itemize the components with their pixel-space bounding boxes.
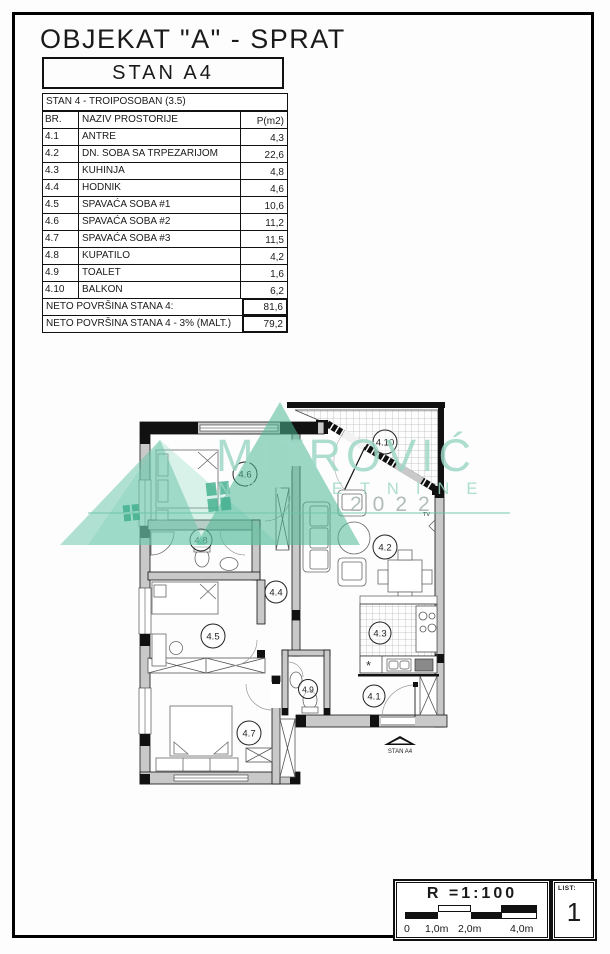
- svg-text:4.8: 4.8: [194, 536, 207, 547]
- sheet-box-inner: LIST: 1: [554, 882, 594, 938]
- svg-text:4.4: 4.4: [269, 588, 282, 599]
- table-row: 4.5SPAVAĆA SOBA #110,6: [43, 196, 287, 213]
- scale-tick: 0: [404, 923, 410, 935]
- table-row: 4.7SPAVAĆA SOBA #311,5: [43, 230, 287, 247]
- scale-box-inner: R =1:100 0 1,0m 2,0m 4,0m: [396, 882, 548, 938]
- scale-box: R =1:100 0 1,0m 2,0m 4,0m: [393, 879, 551, 941]
- unit-title-box: STAN A4: [42, 57, 284, 89]
- summary-row: NETO POVRŠINA STANA 4:81,6: [43, 298, 287, 315]
- svg-text:4.1: 4.1: [367, 692, 380, 703]
- table-row: 4.8KUPATILO4,2: [43, 247, 287, 264]
- room-label: 4.5: [201, 624, 225, 648]
- table-row: 4.1ANTRE4,3: [43, 128, 287, 145]
- unit-title: STAN A4: [112, 62, 214, 85]
- bedroom2-furniture: [156, 450, 218, 520]
- table-row: 4.3KUHINJA4,8: [43, 162, 287, 179]
- svg-text:4.3: 4.3: [373, 629, 386, 640]
- col-br: BR.: [43, 112, 79, 128]
- table-header-row: BR. NAZIV PROSTORIJE P(m2): [43, 111, 287, 128]
- room-label: 4.3: [369, 622, 391, 644]
- bedroom1-furniture: [152, 582, 218, 666]
- summary-row: NETO POVRŠINA STANA 4 - 3% (MALT.)79,2: [43, 315, 287, 332]
- table-row: 4.2DN. SOBA SA TRPEZARIJOM22,6: [43, 145, 287, 162]
- col-name: NAZIV PROSTORIJE: [79, 112, 241, 128]
- sheet-label: LIST:: [558, 885, 576, 892]
- room-label: 4.1: [363, 685, 385, 707]
- entrance-label: STAN A4: [388, 749, 413, 755]
- sheet-box: LIST: 1: [551, 879, 597, 941]
- table-row: 4.9TOALET1,6: [43, 264, 287, 281]
- room-label: 4.6: [233, 462, 257, 486]
- floor-plan: * 4.6 4.10 4.8 4.4 4.5 4.2 4.3 4.9 4.1 4…: [132, 392, 462, 802]
- table-row: 4.6SPAVAĆA SOBA #211,2: [43, 213, 287, 230]
- balcony: [287, 402, 445, 495]
- entrance-arrow-icon: STAN A4: [384, 736, 416, 755]
- table-title: STAN 4 - TROIPOSOBAN (3.5): [43, 94, 287, 111]
- room-label: 4.2: [373, 535, 397, 559]
- room-label: 4.8: [190, 529, 212, 551]
- scale-tick: 4,0m: [510, 923, 533, 935]
- sheet-number: 1: [555, 897, 593, 928]
- svg-text:4.9: 4.9: [302, 685, 314, 695]
- room-label: 4.7: [237, 721, 261, 745]
- svg-text:4.10: 4.10: [376, 438, 395, 449]
- col-area: P(m2): [241, 112, 287, 128]
- svg-text:4.7: 4.7: [242, 729, 255, 740]
- document-title: OBJEKAT "A" - SPRAT: [40, 24, 346, 55]
- scale-tick: 2,0m: [458, 923, 481, 935]
- scale-ratio: R =1:100: [397, 885, 547, 903]
- scale-tick: 1,0m: [425, 923, 448, 935]
- table-row: 4.10BALKON6,2: [43, 281, 287, 298]
- svg-text:4.2: 4.2: [378, 543, 391, 554]
- table-row: 4.4HODNIK4,6: [43, 179, 287, 196]
- svg-text:4.5: 4.5: [206, 632, 219, 643]
- svg-text:4.6: 4.6: [238, 470, 251, 481]
- bedroom3-furniture: [156, 706, 238, 771]
- room-label: 4.4: [265, 581, 287, 603]
- areas-table: STAN 4 - TROIPOSOBAN (3.5) BR. NAZIV PRO…: [42, 93, 288, 333]
- tv-label: TV: [423, 512, 430, 518]
- svg-text:*: *: [366, 658, 371, 673]
- living-furniture: [303, 490, 435, 602]
- room-label: 4.10: [373, 430, 397, 454]
- room-label: 4.9: [299, 680, 318, 699]
- drawing-page: OBJEKAT "A" - SPRAT STAN A4 STAN 4 - TRO…: [0, 0, 610, 954]
